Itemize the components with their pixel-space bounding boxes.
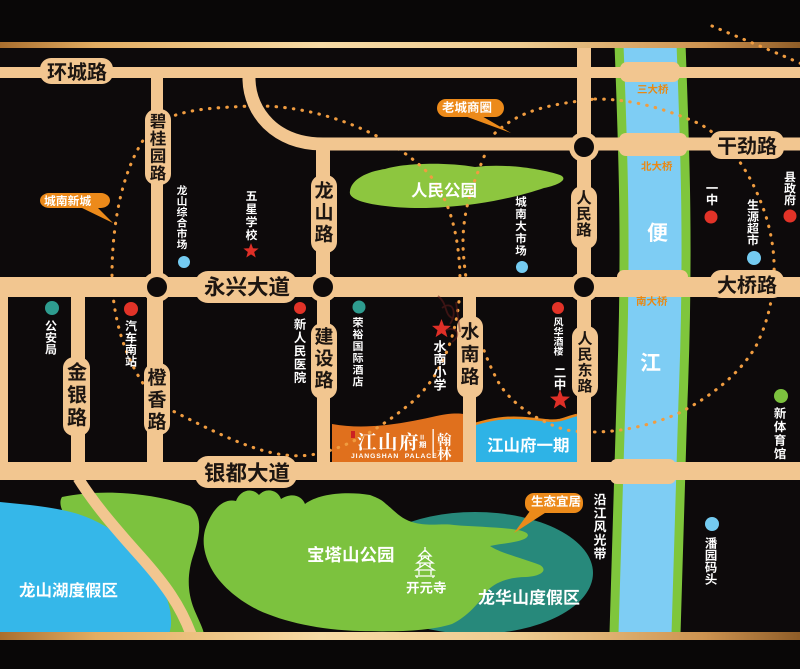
svg-text:JIANGSHAN PALACE: JIANGSHAN PALACE <box>351 453 438 460</box>
